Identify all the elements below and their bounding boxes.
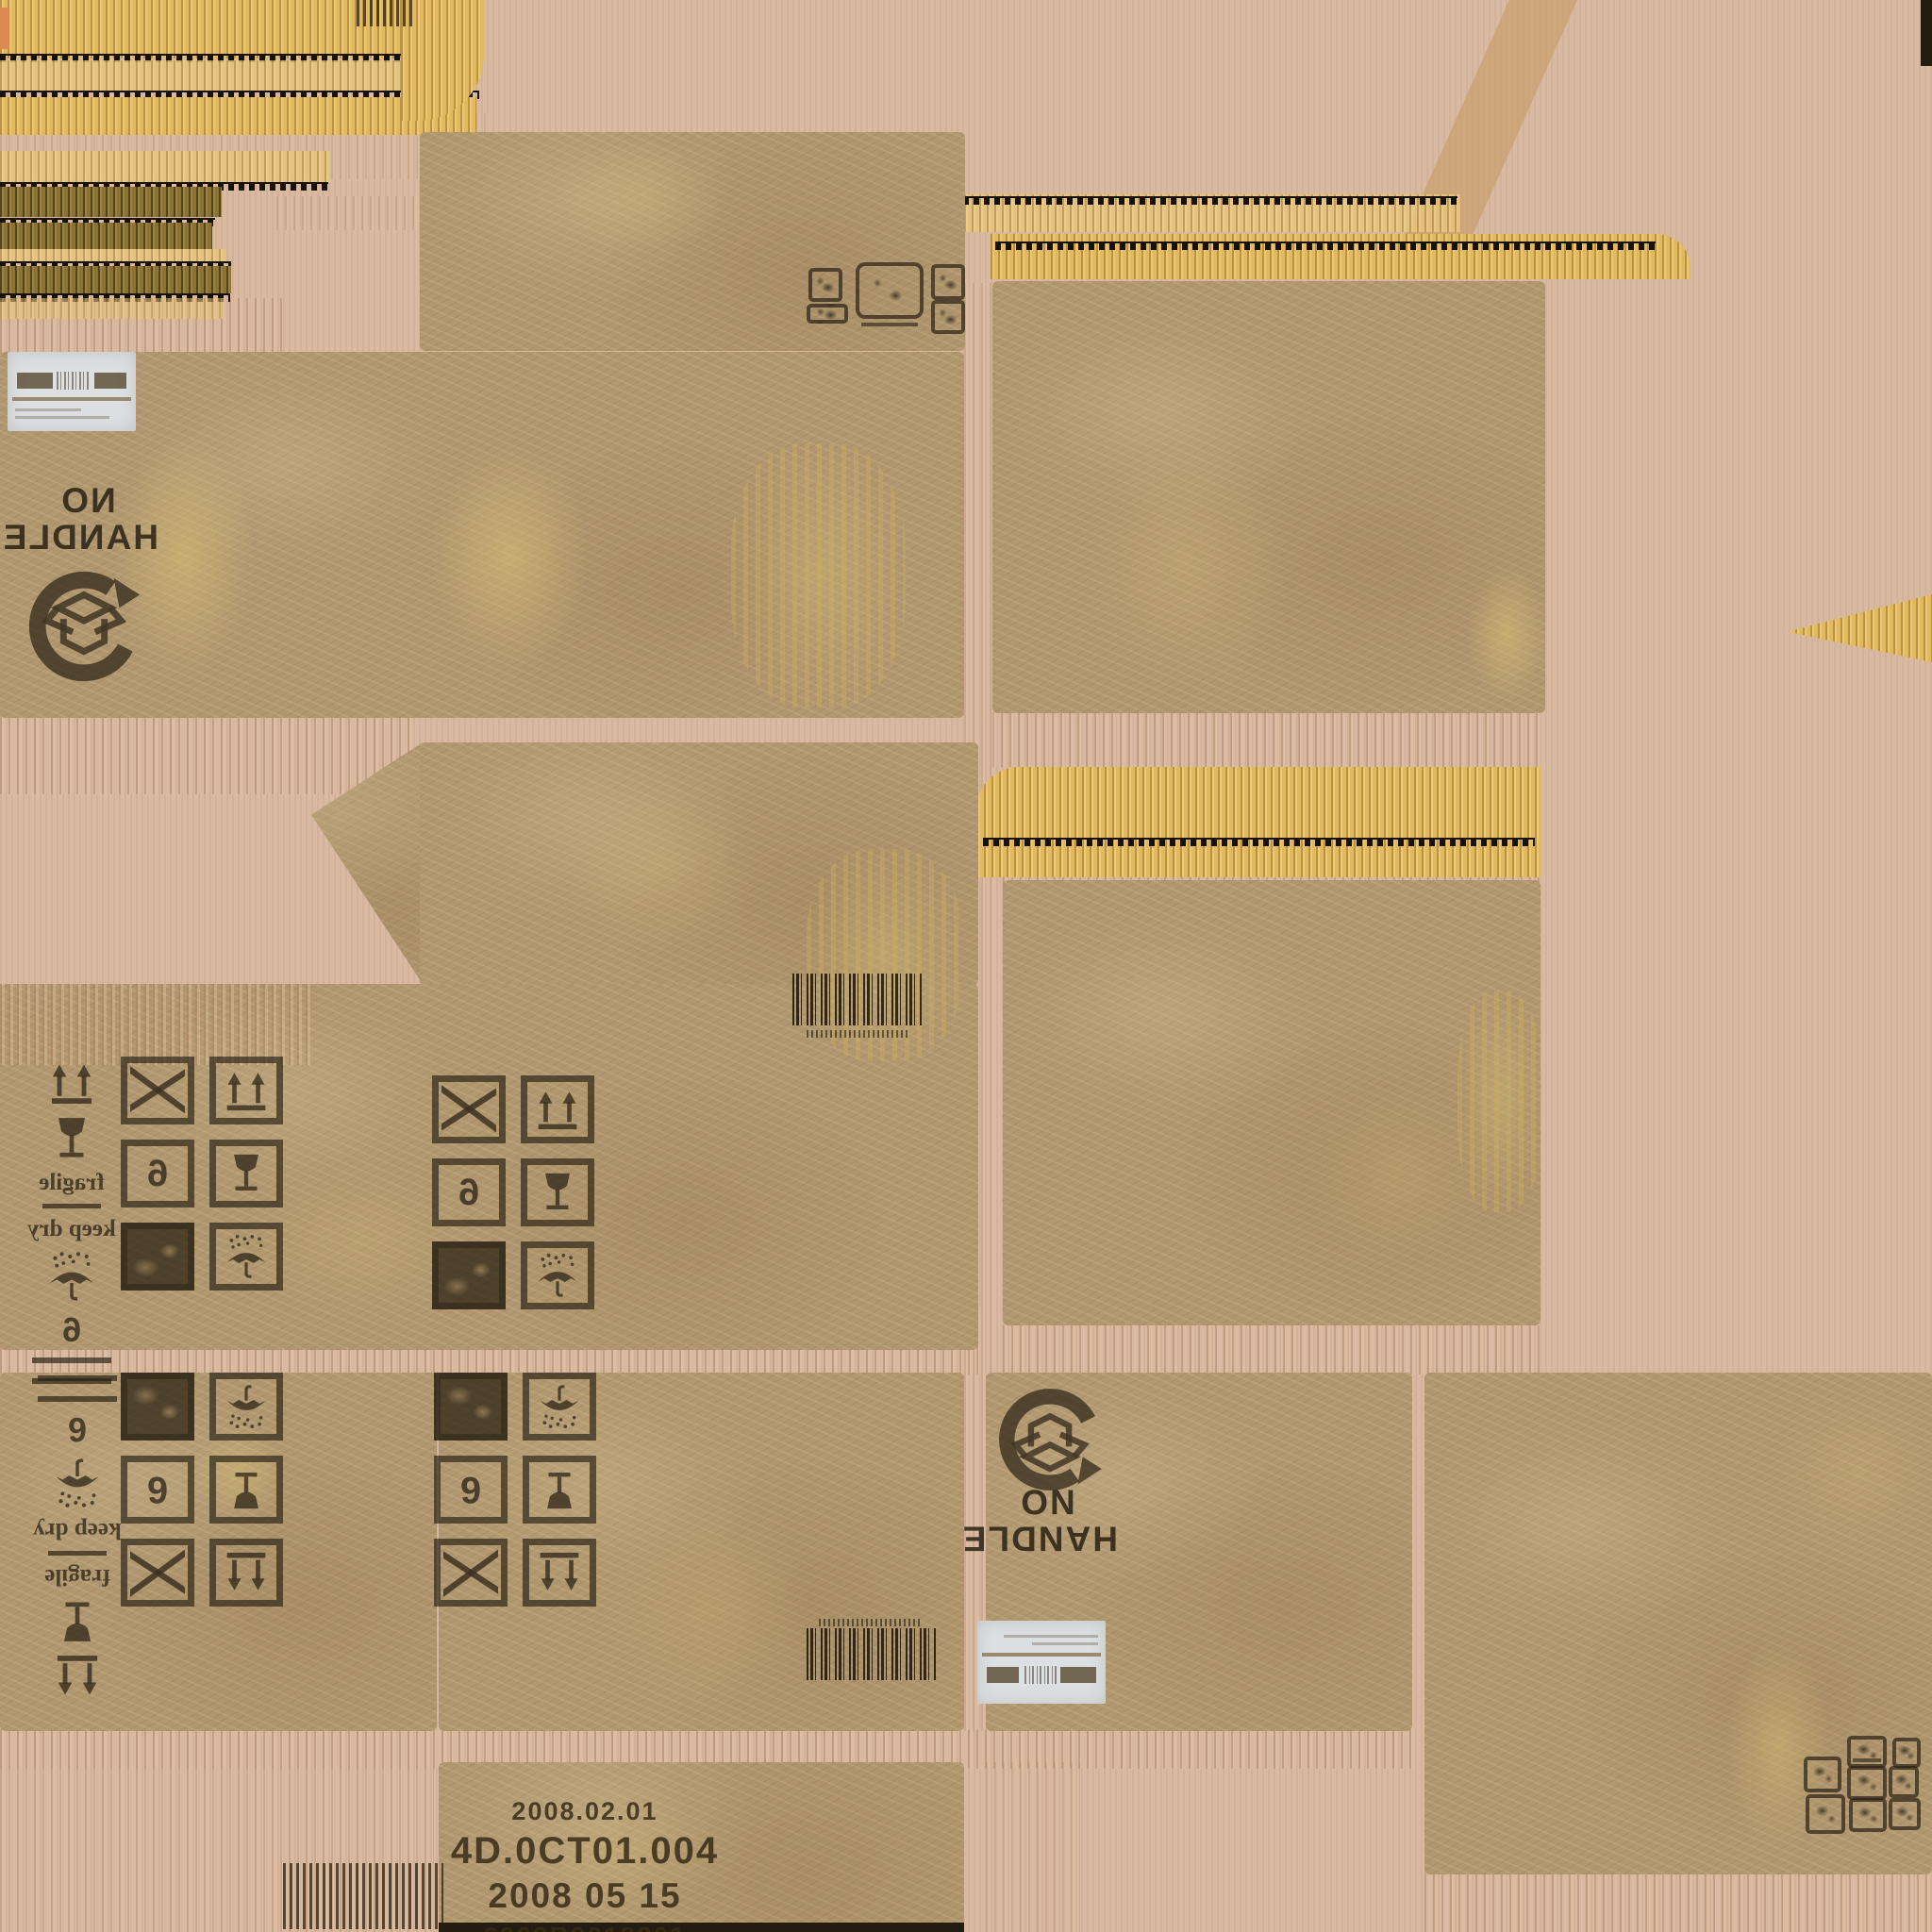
crossed-out-box-icon <box>439 1082 499 1137</box>
stack-limit-text: 6 <box>147 1469 168 1511</box>
crossed-out-box-icon <box>441 1545 501 1600</box>
double-bar <box>38 1375 117 1402</box>
divider-bar <box>42 1204 101 1208</box>
stack-limit-cell: 6 <box>432 1158 506 1226</box>
seam-fringe <box>0 984 313 1065</box>
crossed-box-cell <box>434 1539 508 1607</box>
tool-warning-icon <box>1806 1794 1845 1834</box>
stain <box>1774 1387 1932 1557</box>
symbol-grid-stamp: 6 <box>434 1373 596 1607</box>
ink-patch-cell <box>432 1241 506 1309</box>
corrugated-band <box>976 767 1541 877</box>
fragile-wine-glass-icon <box>225 1152 268 1195</box>
stack-limit-cell: 6 <box>434 1456 508 1524</box>
dark-streak <box>283 1863 443 1929</box>
print-date-line: 2008.02.01 <box>425 1797 745 1826</box>
corrugated-strip <box>0 223 212 249</box>
label-line <box>15 408 81 411</box>
symbol-grid-stamp: 6 <box>121 1057 283 1291</box>
no-handle-line1: NO <box>976 1483 1118 1520</box>
fragile-glass-cell <box>521 1158 594 1226</box>
this-way-up-cell <box>209 1057 283 1124</box>
stain <box>566 783 755 953</box>
this-way-up-cell <box>521 1075 594 1143</box>
symbol-grid-stamp: 6 <box>432 1075 594 1309</box>
label-barcode <box>57 372 89 390</box>
handling-symbol-column: fragile keep dry 6 <box>13 1058 130 1384</box>
label-rule <box>982 1653 1101 1657</box>
fragile-wine-glass-icon <box>536 1171 579 1214</box>
keep-dry-cell <box>521 1241 594 1309</box>
print-serial-line: 6062B0013201 <box>425 1922 745 1932</box>
corrugation-line <box>983 838 1535 846</box>
label-block <box>17 373 53 389</box>
stack-limit-cell: 6 <box>121 1456 194 1524</box>
keep-dry-mini-icon <box>1804 1757 1841 1792</box>
shipping-label <box>8 352 136 431</box>
keep-dry-cell <box>523 1373 596 1441</box>
this-way-up-arrows-icon <box>51 1652 104 1701</box>
stack-limit-text: 6 <box>68 1409 87 1449</box>
corrugated-strip <box>0 298 225 319</box>
texture-atlas-sheet: NO HANDLE HANDLE NO fragile keep dry 6 f… <box>0 0 1932 1932</box>
stack-limit-text: 6 <box>458 1172 479 1214</box>
stain <box>1302 1085 1491 1264</box>
label-block <box>94 373 126 389</box>
no-trolley-icon <box>856 262 924 319</box>
seam-fringe <box>992 712 1544 767</box>
small-warning-pictogram-cluster <box>1804 1743 1924 1834</box>
fragile-wine-glass-icon <box>538 1468 581 1511</box>
stain <box>1085 443 1292 689</box>
orange-sliver <box>0 8 8 49</box>
label-line <box>1032 1642 1098 1645</box>
keep-dry-umbrella-icon <box>222 1383 271 1430</box>
fragile-text: fragile <box>44 1563 109 1590</box>
this-way-up-arrows-icon <box>536 1549 583 1596</box>
impact-warning-icon <box>1849 1798 1887 1832</box>
gold-wedge <box>1788 594 1932 662</box>
tool-warning-icon <box>931 264 965 300</box>
label-block <box>987 1667 1019 1683</box>
keep-dry-text: keep dry <box>33 1517 122 1543</box>
keep-dry-text: keep dry <box>27 1216 116 1242</box>
crossed-box-cell <box>432 1075 506 1143</box>
open-box-circular-arrow-stamp-icon <box>19 552 149 701</box>
this-way-up-arrows-icon <box>534 1086 581 1133</box>
keep-dry-umbrella-icon <box>535 1383 584 1430</box>
no-handle-line1: NO <box>17 483 158 520</box>
barcode-caption <box>807 1030 908 1038</box>
fragile-glass-cell <box>209 1140 283 1207</box>
fragile-wine-glass-icon <box>54 1597 101 1644</box>
ink-patch-cell <box>121 1373 194 1441</box>
no-handle-line2: HANDLE <box>976 1520 1118 1557</box>
seam-fringe <box>1424 1873 1932 1932</box>
handling-symbol-column: fragile keep dry 6 <box>19 1375 136 1701</box>
fragile-text: fragile <box>39 1170 104 1196</box>
crossed-out-box-icon <box>127 1063 188 1118</box>
ink-patch-cell <box>434 1373 508 1441</box>
this-way-up-cell <box>209 1539 283 1607</box>
seam-fringe <box>0 705 415 794</box>
keep-dry-umbrella-icon <box>44 1250 99 1303</box>
seam-fringe <box>986 1762 1080 1932</box>
fragile-glass-cell <box>209 1456 283 1524</box>
keep-dry-umbrella-icon <box>222 1233 271 1280</box>
label-rule <box>12 397 131 401</box>
open-box-circular-arrow-stamp-icon <box>989 1379 1111 1500</box>
corrugated-strip <box>0 187 222 217</box>
corrugated-strip <box>0 266 231 293</box>
this-way-up-arrows-icon <box>223 1549 270 1596</box>
barcode-stamp <box>807 1628 937 1680</box>
this-way-up-cell <box>523 1539 596 1607</box>
hook-icon <box>1892 1738 1921 1768</box>
no-trolley-icon <box>1847 1766 1887 1800</box>
corrugated-strip <box>0 249 226 261</box>
keep-dry-cell <box>209 1223 283 1291</box>
label-line <box>1004 1635 1098 1638</box>
stain-striped <box>731 443 906 708</box>
stack-limit-text: 6 <box>460 1469 481 1511</box>
corrugated-strip <box>0 151 330 183</box>
fragile-wine-glass-icon <box>225 1468 268 1511</box>
this-way-up-arrows-icon <box>223 1067 270 1114</box>
print-date2-line: 2008 05 15 <box>425 1876 745 1916</box>
label-line <box>15 416 109 419</box>
stain <box>604 1500 811 1717</box>
crossed-box-cell <box>121 1539 194 1607</box>
crossed-out-box-icon <box>127 1545 188 1600</box>
impact-warning-icon <box>808 268 842 302</box>
stain <box>429 443 590 670</box>
stack-limit-cell: 6 <box>121 1140 194 1207</box>
label-barcode <box>1024 1666 1057 1684</box>
hand-warning-icon <box>1889 1798 1921 1830</box>
small-warning-pictogram-cluster <box>797 257 967 337</box>
fragile-wine-glass-icon <box>48 1115 95 1162</box>
tan-diagonal-band <box>1399 0 1578 274</box>
no-handle-stamp-text: NO HANDLE <box>17 483 158 557</box>
hand-warning-icon <box>931 300 965 334</box>
marking-icon <box>1889 1766 1919 1798</box>
stack-limit-text: 6 <box>62 1310 81 1350</box>
stain <box>552 142 722 255</box>
marking-strip-icon <box>807 304 848 324</box>
symbol-grid-stamp: 6 <box>121 1373 283 1607</box>
print-code-block: 2008.02.01 4D.0CT01.004 2008 05 15 6062B… <box>425 1797 745 1932</box>
stack-limit-text: 6 <box>147 1153 168 1195</box>
corrugation-line <box>995 241 1656 250</box>
dark-sliver <box>1921 0 1932 66</box>
barcode-caption <box>819 1619 921 1626</box>
no-handle-line2: HANDLE <box>17 520 158 557</box>
ink-patch-cell <box>121 1223 194 1291</box>
no-handle-stamp-text: HANDLE NO <box>976 1483 1118 1557</box>
keep-dry-cell <box>209 1373 283 1441</box>
stain <box>1467 566 1547 703</box>
crossed-box-cell <box>121 1057 194 1124</box>
label-block <box>1060 1667 1096 1683</box>
print-lot-line: 4D.0CT01.004 <box>425 1830 745 1873</box>
fragile-glass-cell <box>523 1456 596 1524</box>
crossed-mini-icon <box>1847 1736 1887 1768</box>
seam-fringe <box>1003 1325 1541 1374</box>
shipping-label <box>977 1621 1106 1704</box>
this-way-up-arrows-icon <box>45 1058 98 1108</box>
divider-bar <box>48 1551 107 1556</box>
dark-streak <box>357 0 415 26</box>
keep-dry-umbrella-icon <box>533 1252 582 1299</box>
barcode-stamp <box>792 974 923 1025</box>
keep-dry-umbrella-icon <box>50 1457 105 1509</box>
